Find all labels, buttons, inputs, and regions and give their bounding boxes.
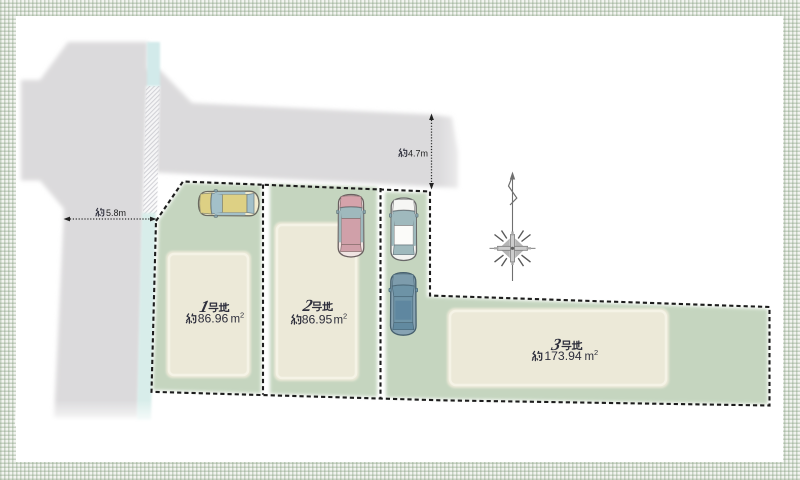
svg-text:5.8m: 5.8m — [106, 208, 126, 218]
svg-text:m: m — [585, 351, 595, 363]
svg-text:4.7m: 4.7m — [408, 149, 428, 159]
svg-text:m: m — [334, 315, 344, 327]
svg-text:2: 2 — [594, 348, 598, 357]
svg-text:173.94: 173.94 — [544, 349, 581, 363]
svg-text:2: 2 — [343, 312, 347, 321]
svg-text:2: 2 — [240, 311, 244, 320]
svg-text:86.95: 86.95 — [302, 313, 333, 327]
svg-text:86.96: 86.96 — [198, 312, 229, 326]
svg-text:m: m — [231, 314, 241, 326]
